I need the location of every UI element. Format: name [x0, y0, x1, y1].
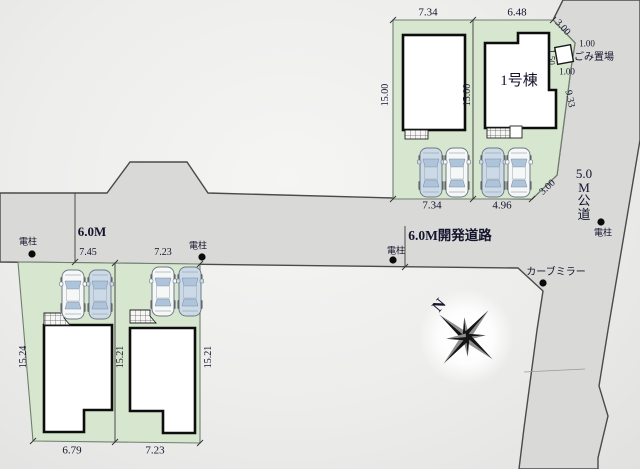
site-plan-canvas: [0, 0, 640, 469]
car-top-view: [177, 267, 204, 316]
compass: [418, 289, 514, 385]
porch-step-building-1: [510, 126, 522, 138]
pole-west-dot: [28, 250, 35, 257]
car-top-view: [506, 148, 533, 197]
porch-building-2: [405, 130, 428, 139]
building-2-footprint: [403, 35, 465, 130]
garbage-box: [555, 45, 574, 65]
porch-building-1: [487, 128, 510, 138]
car-top-view: [60, 270, 87, 319]
car-top-view: [87, 270, 114, 319]
car-top-view: [480, 148, 507, 197]
pole-east-dot: [597, 218, 604, 225]
car-top-view: [444, 148, 471, 197]
car-top-view: [418, 148, 445, 197]
curve-mirror-dot: [539, 279, 546, 286]
building-1-footprint: [485, 33, 556, 128]
pole-mid-dot: [389, 256, 396, 263]
site-plan: 7.346.483.001.001.50ごみ置場1.001号棟15.0015.0…: [0, 0, 640, 469]
pole-lotB-dot: [198, 253, 205, 260]
car-top-view: [150, 267, 177, 316]
